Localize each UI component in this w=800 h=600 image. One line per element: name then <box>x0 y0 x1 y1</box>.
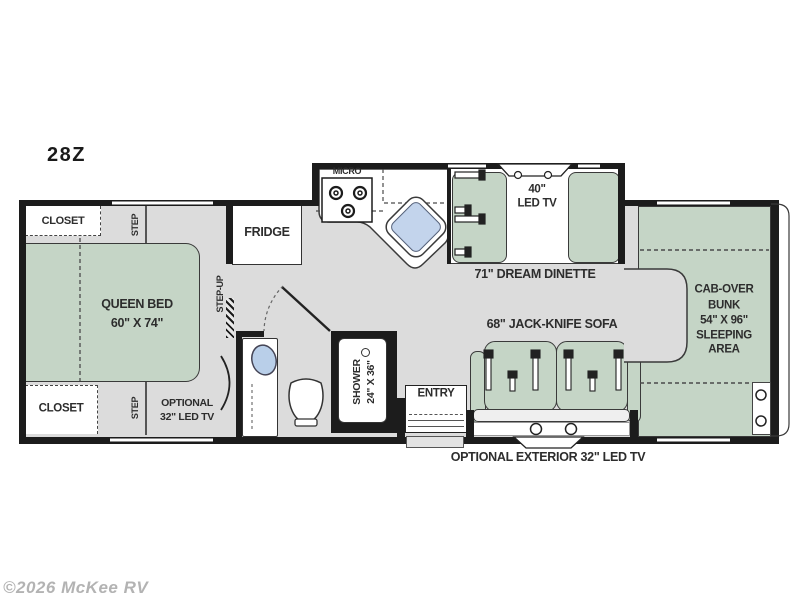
shower-label-2: 24" X 36" <box>366 360 378 403</box>
sofa-label: 68" JACK-KNIFE SOFA <box>487 318 618 332</box>
bunk-label-3: 54" X 96" <box>700 315 748 328</box>
exterior-tv-label: OPTIONAL EXTERIOR 32" LED TV <box>451 451 646 465</box>
entry-label: ENTRY <box>417 388 454 401</box>
queen-bed-label-1: QUEEN BED <box>101 298 173 312</box>
step-bottom-label: STEP <box>131 397 141 419</box>
model-number: 28Z <box>47 144 86 167</box>
optional-tv-label-1: OPTIONAL <box>161 398 213 410</box>
tv40-mount-icon <box>498 164 572 179</box>
bunk-label-4: SLEEPING <box>696 330 752 343</box>
tv40-label-1: 40" <box>528 184 545 197</box>
fridge-label: FRIDGE <box>244 226 289 240</box>
bunk-label-2: BUNK <box>708 300 740 313</box>
bunk-label-5: AREA <box>708 344 739 357</box>
tv40-label-2: LED TV <box>517 198 556 211</box>
closet-top-label: CLOSET <box>42 215 85 227</box>
step-up-label: STEP-UP <box>216 276 226 313</box>
closet-bottom-label: CLOSET <box>39 403 84 416</box>
step-top-label: STEP <box>131 214 141 236</box>
shower-label-1: SHOWER <box>352 359 364 404</box>
dinette-label: 71" DREAM DINETTE <box>475 268 596 282</box>
optional-tv-label-2: 32" LED TV <box>160 412 214 424</box>
floorplan-canvas: 28Z <box>0 0 800 600</box>
watermark: ©2026 McKee RV <box>3 578 148 598</box>
front-cap-outline <box>771 204 789 436</box>
queen-bed-label-2: 60" X 74" <box>111 317 163 331</box>
micro-label: MICRO <box>333 167 362 177</box>
exterior-tv-mount-icon <box>514 437 583 448</box>
bunk-label-1: CAB-OVER <box>695 284 754 297</box>
